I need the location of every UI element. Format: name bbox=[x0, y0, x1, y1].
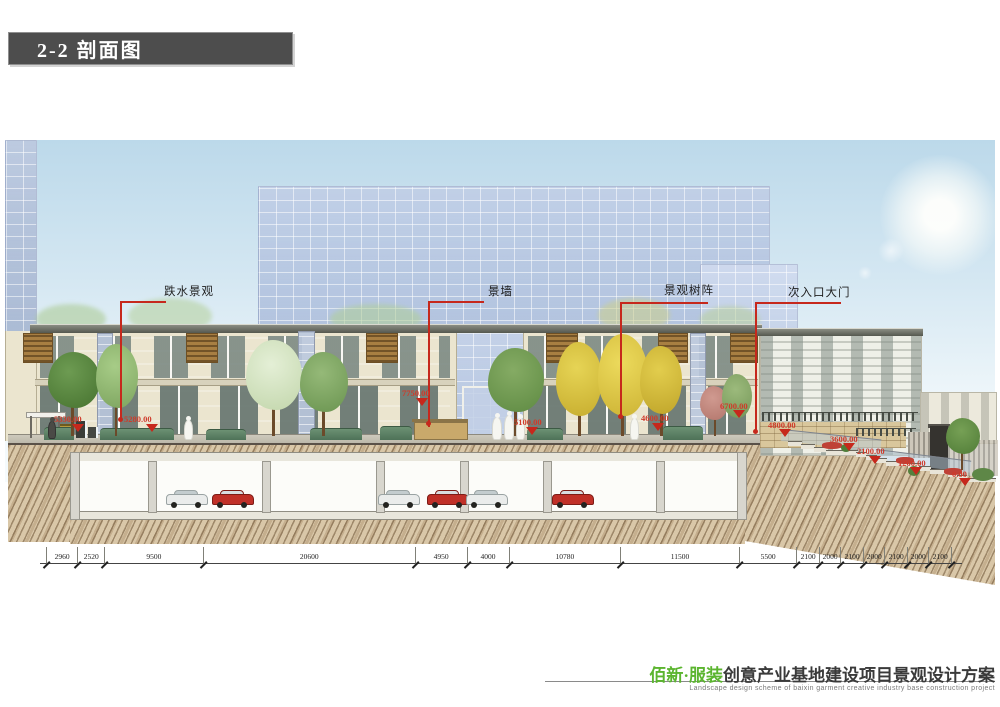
wood-louver bbox=[366, 333, 398, 363]
footer-caption-en: Landscape design scheme of baixin garmen… bbox=[689, 685, 995, 692]
roof-band bbox=[30, 324, 762, 333]
dimension-bar: 2960 2520 9500 20600 4950 4000 10780 115… bbox=[40, 547, 962, 564]
leader-dot bbox=[618, 414, 623, 419]
stair-step bbox=[801, 444, 815, 449]
sun-flare-2 bbox=[858, 266, 872, 280]
dim-segment: 2100 bbox=[884, 547, 907, 564]
hedge bbox=[380, 426, 412, 440]
stair-step bbox=[788, 441, 802, 446]
leader-dot bbox=[753, 429, 758, 434]
footer-brand: 佰新·服装创意产业基地建设项目景观设计方案 bbox=[649, 661, 995, 686]
earth-left bbox=[8, 443, 70, 542]
car-white bbox=[166, 489, 206, 508]
dim-segment: 2100 bbox=[796, 547, 819, 564]
footer-brand-black: 创意产业基地建设项目景观设计方案 bbox=[723, 666, 995, 685]
person bbox=[492, 417, 502, 440]
tree-right-slope bbox=[946, 418, 980, 454]
label-landscape-wall: 景墙 bbox=[488, 283, 513, 299]
car-red bbox=[552, 489, 592, 508]
elevation-value: 5330.00 bbox=[54, 414, 82, 424]
canopy-post bbox=[30, 416, 32, 438]
garage-column bbox=[148, 461, 157, 513]
elevation-value: 4600.00 bbox=[641, 413, 669, 423]
elevation-value: 5100.00 bbox=[514, 417, 542, 427]
leader-dot bbox=[426, 421, 431, 426]
wood-louver bbox=[730, 333, 758, 363]
garage-floor-slab bbox=[70, 511, 747, 520]
elevation-marker bbox=[146, 424, 158, 432]
dimension-segments: 2960 2520 9500 20600 4950 4000 10780 115… bbox=[46, 547, 952, 564]
elevation-value: 5280.00 bbox=[124, 414, 152, 424]
leader-dot bbox=[118, 417, 123, 422]
elevation-marker bbox=[416, 398, 428, 406]
car-red bbox=[427, 489, 467, 508]
dim-segment: 4000 bbox=[467, 547, 509, 564]
person bbox=[184, 420, 193, 440]
wood-louver bbox=[23, 333, 53, 363]
leader-line-h bbox=[120, 301, 166, 303]
tree-pale bbox=[246, 340, 302, 410]
label-water-cascade: 跌水景观 bbox=[164, 283, 214, 299]
elevation-marker bbox=[779, 429, 791, 437]
elevation-marker bbox=[910, 467, 922, 475]
dim-segment: 20600 bbox=[203, 547, 415, 564]
dim-segment: 2000 bbox=[863, 547, 885, 564]
water-cascade-step bbox=[88, 427, 98, 438]
leader-line-v bbox=[620, 302, 622, 418]
footer-brand-green: 佰新·服装 bbox=[649, 666, 723, 685]
dim-segment: 10780 bbox=[509, 547, 621, 564]
label-tree-array: 景观树阵 bbox=[664, 282, 714, 298]
leader-line-h bbox=[620, 302, 708, 304]
hedge bbox=[310, 428, 362, 440]
dim-segment: 2000 bbox=[819, 547, 841, 564]
car-red bbox=[212, 489, 252, 508]
sun-flare-1 bbox=[878, 238, 904, 264]
section-drawing-page: 2-2 剖面图 bbox=[0, 0, 1000, 707]
landscape-wall bbox=[414, 422, 468, 440]
dim-segment: 2960 bbox=[46, 547, 77, 564]
dim-segment: 2000 bbox=[907, 547, 929, 564]
leader-line-h bbox=[755, 302, 841, 304]
tree-light-green bbox=[96, 344, 138, 408]
hedge bbox=[663, 426, 703, 440]
elevation-value: 2100.00 bbox=[857, 446, 885, 456]
terrace-railing bbox=[856, 428, 916, 436]
leader-line-v bbox=[755, 302, 757, 432]
garage-column bbox=[543, 461, 552, 513]
dim-segment: 9500 bbox=[104, 547, 202, 564]
elevation-value: 7750.00 bbox=[402, 388, 430, 398]
car-white bbox=[378, 489, 418, 508]
dim-segment: 5500 bbox=[739, 547, 796, 564]
drawing-title-bar: 2-2 剖面图 bbox=[8, 32, 293, 65]
hedge bbox=[206, 429, 246, 440]
dim-segment: 2520 bbox=[77, 547, 104, 564]
elevation-marker bbox=[652, 423, 664, 431]
garage-column bbox=[262, 461, 271, 513]
tree-green bbox=[488, 348, 544, 412]
building-c-roof bbox=[757, 328, 923, 336]
elevation-marker bbox=[843, 443, 855, 451]
leader-line-v bbox=[428, 301, 430, 427]
label-secondary-gate: 次入口大门 bbox=[788, 284, 851, 300]
garage-wall-right bbox=[737, 452, 747, 520]
garage-column bbox=[656, 461, 665, 513]
elevation-marker bbox=[959, 478, 971, 486]
dim-segment: 2100 bbox=[928, 547, 952, 564]
elevation-marker bbox=[869, 456, 881, 464]
wood-louver bbox=[186, 333, 218, 363]
tree-green bbox=[300, 352, 348, 412]
shrub-ball bbox=[972, 468, 994, 481]
person bbox=[630, 418, 639, 440]
elevation-marker bbox=[526, 427, 538, 435]
leader-line-h bbox=[428, 301, 484, 303]
person bbox=[504, 415, 514, 440]
dim-segment: 4950 bbox=[415, 547, 467, 564]
tree-ginkgo bbox=[556, 342, 602, 416]
hedge bbox=[100, 428, 174, 440]
tree-green bbox=[48, 352, 100, 408]
dim-segment: 2100 bbox=[840, 547, 863, 564]
drawing-title: 2-2 剖面图 bbox=[9, 34, 143, 63]
left-highrise bbox=[5, 140, 37, 334]
garage-wall-left bbox=[70, 452, 80, 520]
elevation-marker bbox=[72, 424, 84, 432]
tree-ginkgo bbox=[640, 346, 682, 414]
elevation-marker bbox=[733, 410, 745, 418]
car-white bbox=[466, 489, 506, 508]
leader-line-v bbox=[120, 301, 122, 419]
dim-segment: 11500 bbox=[620, 547, 739, 564]
